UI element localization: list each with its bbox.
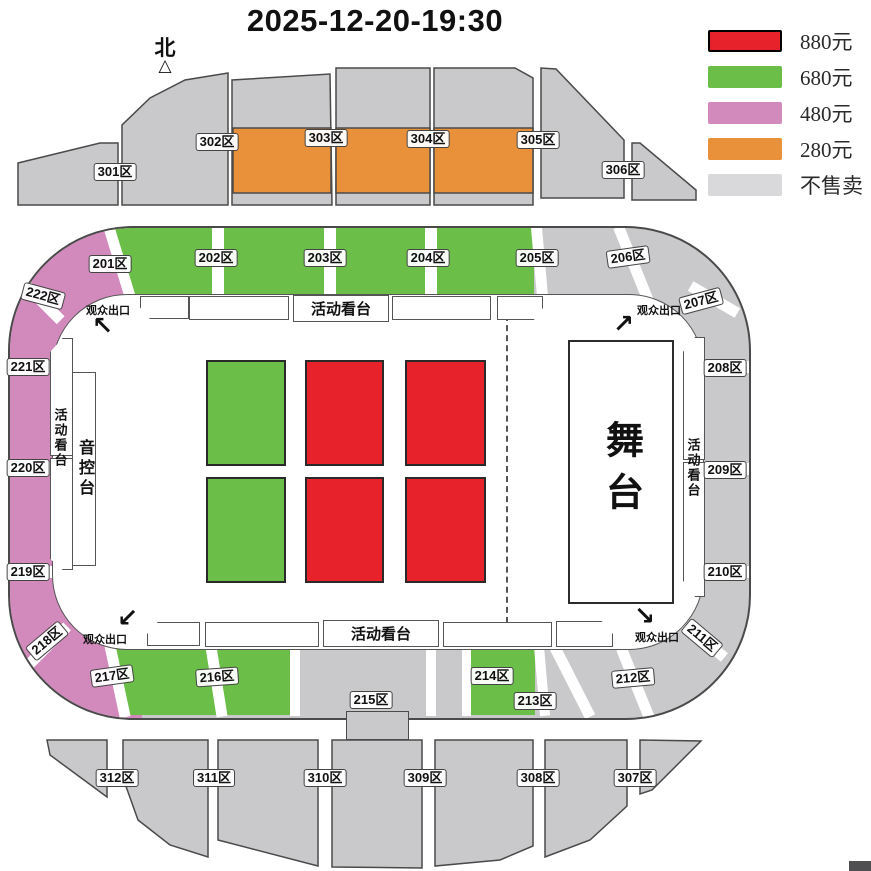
stand-bottom-2 [205,622,319,647]
aisle-215-right [426,647,436,716]
section-label-214[interactable]: 214区 [471,667,514,685]
aisle-214-left [462,647,471,716]
section-label-201[interactable]: 201区 [89,255,132,273]
section-label-219[interactable]: 219区 [7,563,50,581]
floor-block-green-1[interactable] [206,360,286,466]
section-307-shape[interactable] [545,740,627,857]
aisle-213 [550,645,595,719]
stand-top-activity: 活动看台 [293,295,389,322]
stand-bottom-activity: 活动看台 [323,620,439,647]
section-label-208[interactable]: 208区 [704,359,747,377]
stage: 舞台 [568,340,674,604]
section-label-306[interactable]: 306区 [602,161,645,179]
section-label-205[interactable]: 205区 [516,249,559,267]
exit-label-bottom-left: 观众出口 [67,631,143,647]
section-215-protrusion[interactable] [346,711,409,740]
section-label-216[interactable]: 216区 [195,667,239,688]
stand-top-activity-label: 活动看台 [311,298,371,319]
section-310-shape[interactable] [218,740,318,866]
exit-arrow-top-right-icon: ↗ [613,312,634,337]
legend-row-880: 880元 [708,29,863,52]
aisle-215-left [290,647,300,716]
section-label-305[interactable]: 305区 [517,131,560,149]
section-309-shape[interactable] [332,740,422,868]
section-label-307[interactable]: 307区 [614,769,657,787]
section-label-302[interactable]: 302区 [196,133,239,151]
stand-bottom-4 [443,622,552,647]
floor-block-red-1[interactable] [305,360,384,466]
exit-arrow-bottom-left-icon: ↙ [117,606,138,631]
section-311-shape[interactable] [123,740,208,857]
lower-tier-map [0,726,871,871]
section-label-312[interactable]: 312区 [96,769,139,787]
section-label-220[interactable]: 220区 [7,459,50,477]
floor-block-red-2[interactable] [405,360,486,466]
section-label-309[interactable]: 309区 [404,769,447,787]
floor-block-red-4[interactable] [405,477,486,583]
section-label-210[interactable]: 210区 [704,563,747,581]
stand-top-2 [189,296,289,320]
section-label-215[interactable]: 215区 [350,691,393,709]
exit-arrow-top-left-icon: ↖ [92,314,113,339]
sound-console-label: 音控台 [72,439,96,499]
floor-block-red-3[interactable] [305,477,384,583]
legend-label-880: 880元 [800,26,853,56]
stand-bottom-activity-label: 活动看台 [351,623,411,644]
section-label-310[interactable]: 310区 [304,769,347,787]
section-label-213[interactable]: 213区 [514,692,557,710]
section-308-shape[interactable] [435,740,533,866]
sound-console: 音控台 [72,372,96,566]
stage-divider-dashed-line [506,305,508,643]
legend-swatch-880 [708,30,782,52]
section-label-209[interactable]: 209区 [704,461,747,479]
stand-bottom-5 [556,621,613,647]
stage-label: 舞台 [594,420,649,524]
stand-top-1 [140,296,189,319]
stand-top-5 [497,296,543,320]
section-label-204[interactable]: 204区 [407,249,450,267]
stand-left-label: 活动看台 [49,368,71,508]
section-label-304[interactable]: 304区 [407,130,450,148]
section-label-311[interactable]: 311区 [193,769,235,787]
section-label-212[interactable]: 212区 [611,667,655,689]
stand-bottom-1 [147,622,200,646]
section-label-308[interactable]: 308区 [517,769,560,787]
exit-arrow-bottom-right-icon: ↘ [634,604,655,629]
stand-top-4 [392,296,491,320]
event-datetime-title: 2025-12-20-19:30 [225,3,525,39]
section-label-301[interactable]: 301区 [94,163,137,181]
section-label-202[interactable]: 202区 [195,249,238,267]
section-label-221[interactable]: 221区 [7,358,50,376]
section-label-303[interactable]: 303区 [305,129,348,147]
section-label-203[interactable]: 203区 [304,249,347,267]
stand-right-label: 活动看台 [682,398,704,538]
floor-block-green-2[interactable] [206,477,286,583]
